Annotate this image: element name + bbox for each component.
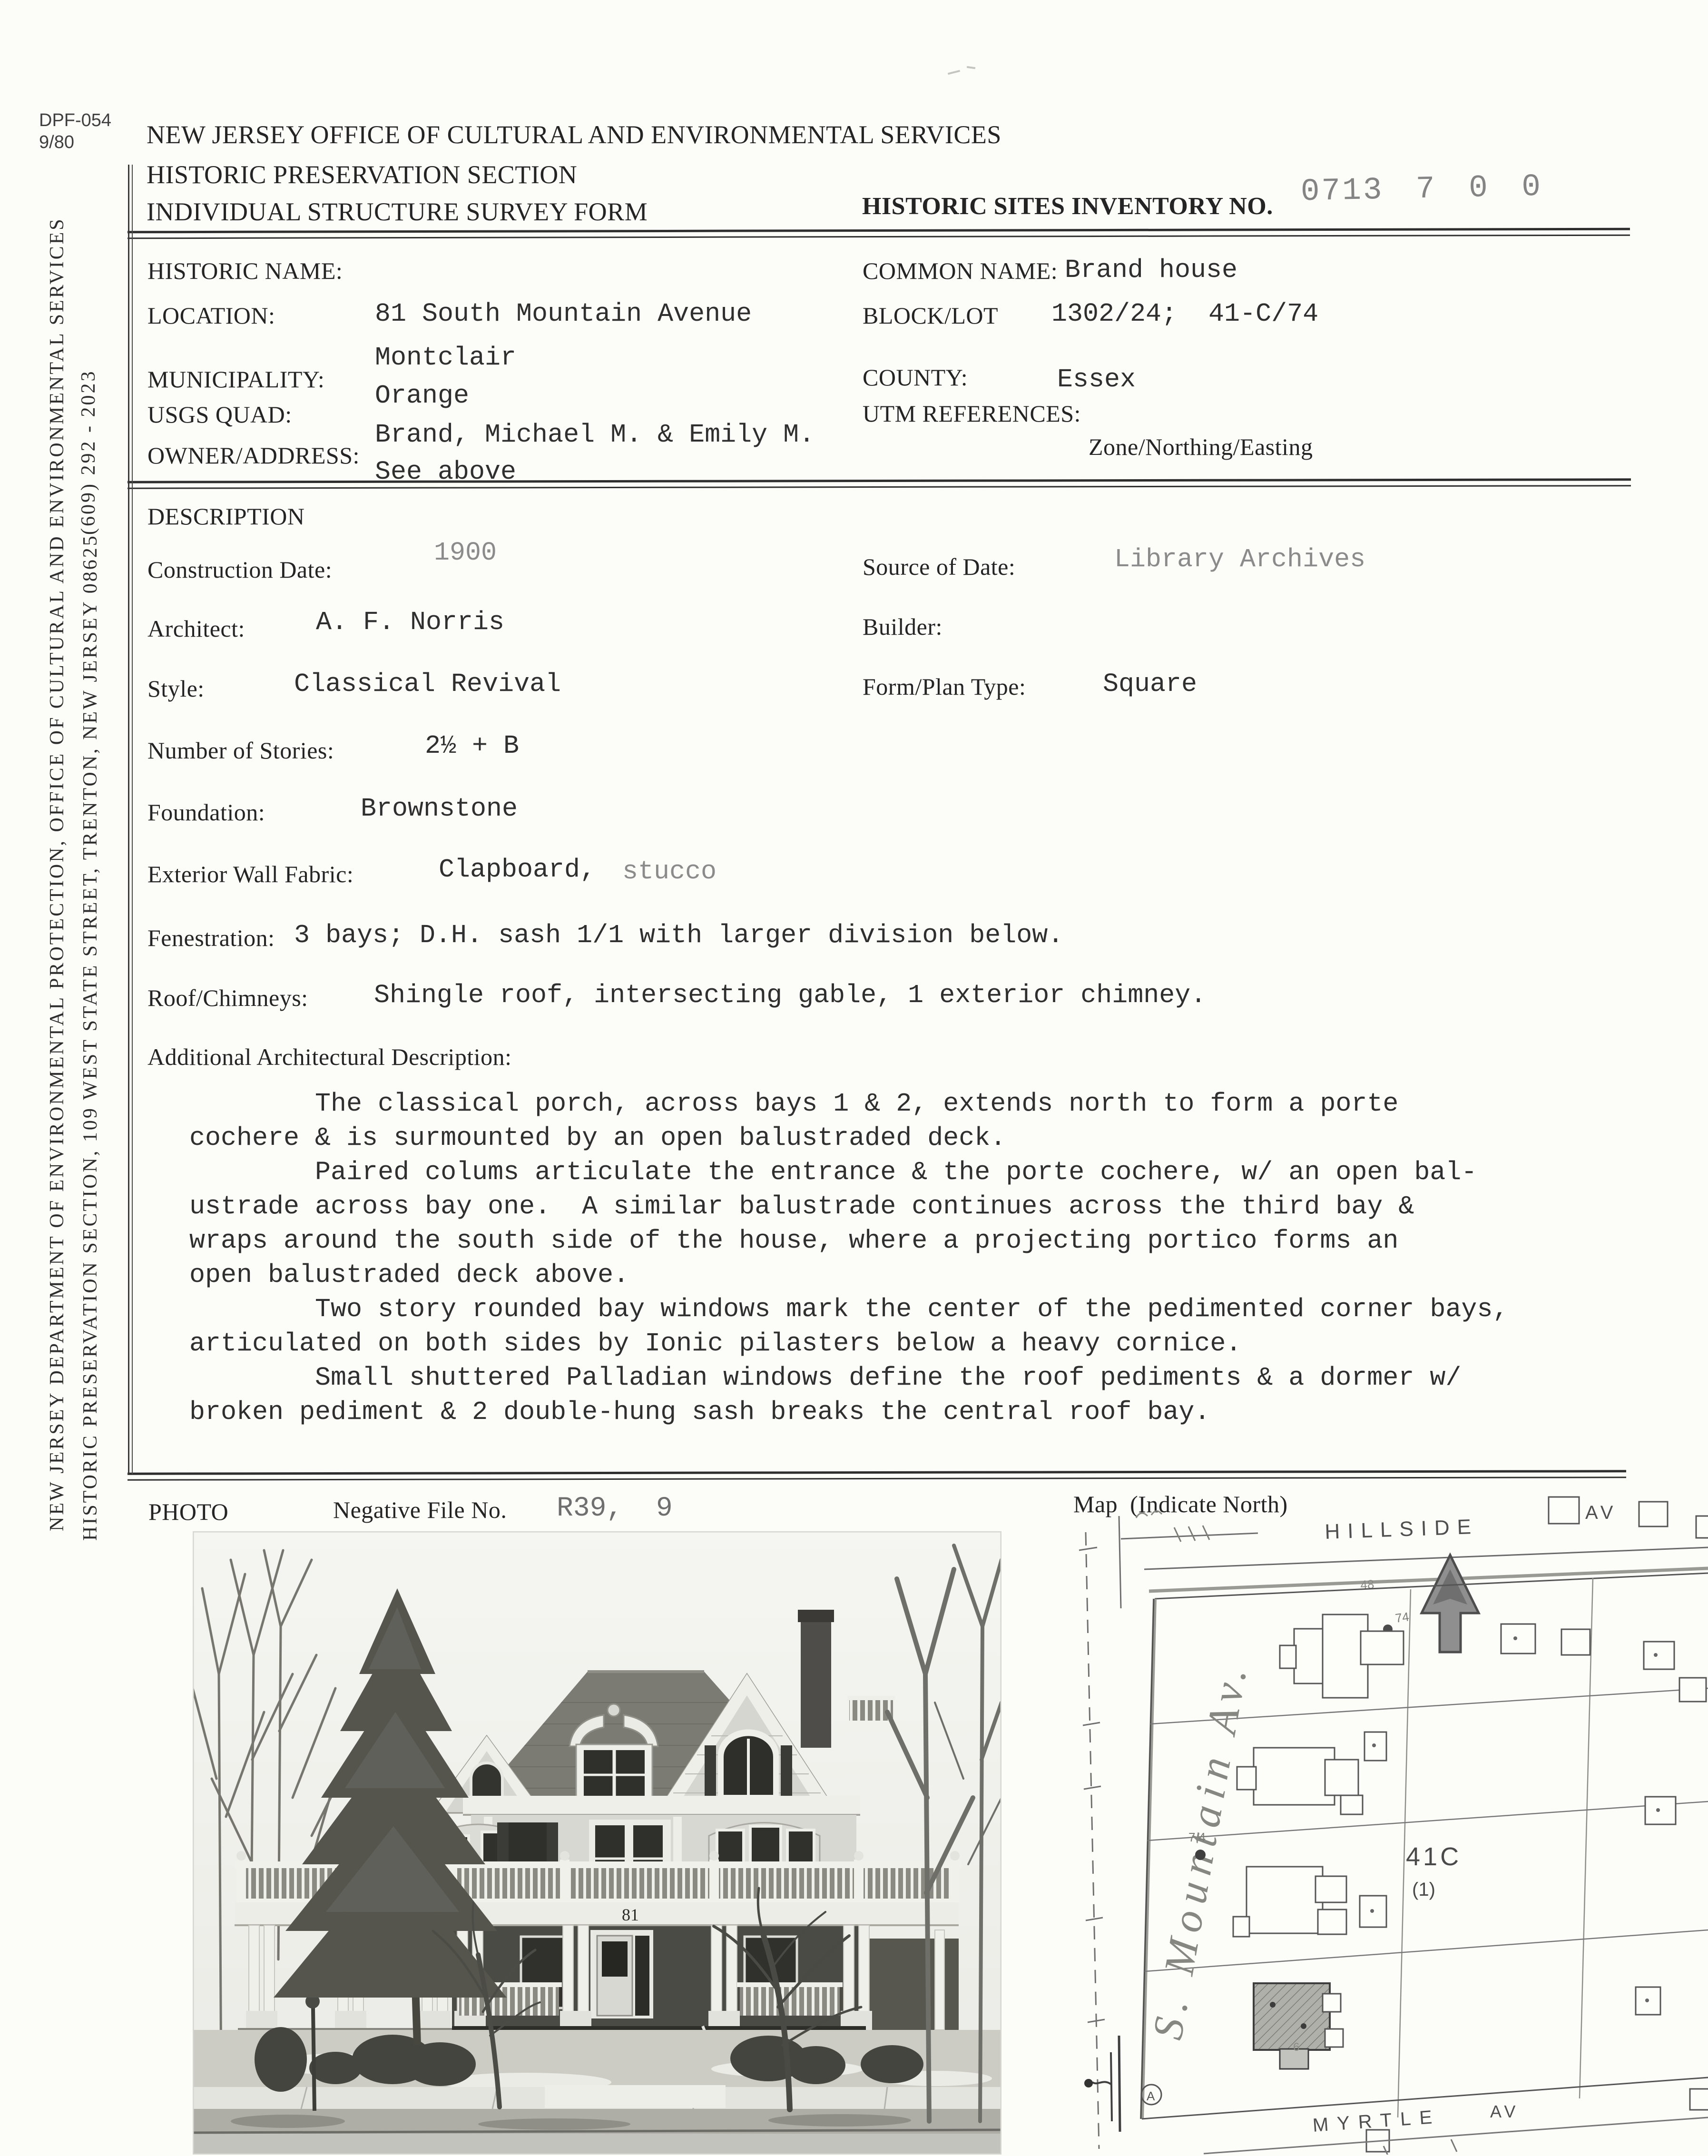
block-left-edge-shadow	[1142, 1599, 1155, 2119]
cross-street-hatches	[1174, 1526, 1209, 1542]
door-sidelight	[635, 1936, 649, 2016]
lot-label: (1)	[1412, 1879, 1435, 1900]
location-label: LOCATION:	[147, 302, 275, 329]
street-centerline-left	[1086, 1532, 1099, 2149]
wall-fabric-label: Exterior Wall Fabric:	[147, 860, 353, 888]
architect-value: A. F. Norris	[316, 607, 504, 637]
chimney	[801, 1610, 831, 1748]
source-of-date-label: Source of Date:	[863, 553, 1015, 581]
sidebar-phone: (609) 292 - 2023	[77, 370, 100, 535]
utm-references-label: UTM REFERENCES:	[863, 400, 1081, 427]
paragraph-line: The classical porch, across bays 1 & 2, …	[189, 1087, 1508, 1121]
block-label: 41C	[1406, 1842, 1462, 1871]
paragraph-line: articulated on both sides by Ionic pilas…	[189, 1327, 1508, 1361]
historic-name-label: HISTORIC NAME:	[147, 257, 343, 285]
utility-pole-symbol	[1084, 2036, 1120, 2132]
cross-street-top-edge	[1121, 1533, 1258, 1539]
stories-label: Number of Stories:	[147, 737, 334, 764]
horizontal-rule-middle	[128, 478, 1631, 489]
paragraph-line: cochere & is surmounted by an open balus…	[189, 1121, 1508, 1155]
description-section-title: DESCRIPTION	[147, 502, 305, 530]
door-glass	[602, 1941, 628, 1977]
fenestration-value: 3 bays; D.H. sash 1/1 with larger divisi…	[294, 920, 1063, 950]
street-name-hillside: HILLSIDE	[1325, 1515, 1479, 1544]
foundation-label: Foundation:	[147, 798, 265, 826]
horizontal-rule-top	[128, 228, 1630, 239]
hillside-street-line	[1144, 1547, 1708, 1569]
inventory-number-stamp: 0713 7 0 0	[1300, 169, 1543, 210]
street-name-myrtle-av: AV	[1490, 2102, 1519, 2121]
map-annotation-6: 6	[1293, 2041, 1299, 2054]
owner-value-line1: Brand, Michael M. & Emily M.	[375, 420, 815, 450]
roof-deck-balustrade	[849, 1699, 893, 1721]
construction-date-value: 1900	[434, 538, 497, 568]
architect-label: Architect:	[147, 615, 245, 642]
common-name-label: COMMON NAME:	[863, 257, 1058, 285]
negative-file-label: Negative File No.	[333, 1496, 507, 1524]
paragraph-line: Two story rounded bay windows mark the c…	[189, 1292, 1508, 1327]
sidebar-agency-address-inner: HISTORIC PRESERVATION SECTION, 109 WEST …	[79, 534, 102, 1541]
usgs-quad-value: Orange	[375, 381, 469, 411]
sidebar-agency-address-outer: NEW JERSEY DEPARTMENT OF ENVIRONMENTAL P…	[46, 217, 69, 1531]
usgs-quad-label: USGS QUAD:	[147, 401, 292, 428]
county-value: Essex	[1057, 364, 1136, 394]
negative-file-number: R39, 9	[557, 1493, 673, 1524]
footprint-marks	[1370, 1636, 1660, 2002]
wall-fabric-value: Clapboard,	[439, 855, 596, 885]
paragraph-line: Paired colums articulate the entrance & …	[189, 1155, 1508, 1190]
source-of-date-value: Library Archives	[1114, 544, 1365, 574]
foundation-value: Brownstone	[361, 794, 518, 824]
county-label: COUNTY:	[863, 364, 968, 391]
left-border-line-outer	[128, 165, 129, 1474]
dormer-finial	[608, 1704, 620, 1716]
map-annotation-7h: 7 4	[1188, 1830, 1206, 1844]
agency-title-line2: HISTORIC PRESERVATION SECTION	[147, 160, 577, 189]
wall-fabric-value-gray: stucco	[622, 856, 717, 886]
corner-marker-letter: A	[1147, 2089, 1155, 2103]
roof-chimneys-label: Roof/Chimneys:	[147, 984, 308, 1012]
horizontal-rule-photo	[128, 1470, 1626, 1480]
style-value: Classical Revival	[294, 669, 561, 699]
utm-zone-sublabel: Zone/Northing/Easting	[1089, 433, 1313, 461]
agency-title-line1: NEW JERSEY OFFICE OF CULTURAL AND ENVIRO…	[147, 120, 1001, 149]
porch-rail	[737, 1982, 843, 1987]
palladian-shutter-left	[705, 1745, 716, 1799]
builder-label: Builder:	[863, 613, 942, 640]
form-number-block: DPF-054 9/80	[39, 109, 111, 153]
front-walk	[545, 2085, 726, 2108]
photo-label: PHOTO	[148, 1498, 228, 1526]
location-map: HILLSIDE AV 48 74 S. Mountain Av.	[1056, 1488, 1708, 2155]
left-border-line-inner	[132, 165, 133, 1474]
agency-title-line3: INDIVIDUAL STRUCTURE SURVEY FORM	[147, 197, 648, 226]
roof-chimneys-value: Shingle roof, intersecting gable, 1 exte…	[374, 980, 1206, 1010]
form-revision: 9/80	[39, 131, 111, 153]
owner-value-line2: See above	[375, 457, 516, 487]
construction-date-label: Construction Date:	[147, 556, 332, 583]
owner-address-label: OWNER/ADDRESS:	[147, 442, 360, 469]
cross-street-top	[1119, 1516, 1121, 1608]
street-name-myrtle: MYRTLE	[1312, 2106, 1442, 2136]
paragraph-line: wraps around the south side of the house…	[189, 1224, 1508, 1258]
paragraph-line: ustrade across bay one. A similar balust…	[189, 1190, 1508, 1224]
additional-description-label: Additional Architectural Description:	[147, 1043, 512, 1071]
roof-deck-rail	[847, 1696, 895, 1700]
common-name-value: Brand house	[1065, 255, 1237, 285]
paragraph-line: Small shuttered Palladian windows define…	[189, 1361, 1508, 1395]
street-name-hillside-av: AV	[1585, 1502, 1617, 1523]
interior-lot-line-vertical-2	[1580, 1578, 1593, 2098]
hillside-street-edge	[1149, 1568, 1708, 1591]
form-plan-type-value: Square	[1103, 669, 1197, 699]
form-plan-type-label: Form/Plan Type:	[863, 673, 1026, 700]
palladian-shutter-right	[781, 1745, 792, 1799]
paragraph-line: broken pediment & 2 double-hung sash bre…	[189, 1395, 1508, 1429]
porch-balustrade-right	[740, 1986, 840, 2016]
house-number: 81	[622, 1905, 639, 1924]
road	[193, 2134, 1001, 2155]
street-ticks	[1079, 1547, 1105, 2022]
building-footprints	[1233, 1615, 1404, 1937]
block-lot-label: BLOCK/LOT	[863, 302, 998, 329]
scan-artifact	[948, 70, 960, 75]
paragraph-line: open balustraded deck above.	[189, 1258, 1508, 1292]
form-number: DPF-054	[39, 109, 111, 131]
house-photograph: 81	[193, 1531, 1001, 2155]
map-annotation-74: 74	[1394, 1609, 1410, 1625]
municipality-label: MUNICIPALITY:	[147, 365, 324, 393]
survey-form-page: DPF-054 9/80 NEW JERSEY OFFICE OF CULTUR…	[0, 0, 1708, 2156]
chimney-cap	[798, 1610, 834, 1622]
subject-building-footprint	[1254, 1983, 1343, 2069]
neighbor-footprints	[1360, 1497, 1708, 2152]
fenestration-label: Fenestration:	[147, 924, 275, 952]
municipality-value: Montclair	[375, 343, 516, 373]
north-arrow-icon	[1422, 1555, 1479, 1652]
block-lot-value: 1302/24; 41-C/74	[1051, 299, 1318, 329]
stories-value: 2½ + B	[425, 731, 519, 761]
handwritten-mark	[1136, 1511, 1162, 1518]
map-dot-marker-subject	[1195, 1850, 1206, 1860]
main-cornice	[463, 1796, 860, 1815]
location-value: 81 South Mountain Avenue	[375, 299, 752, 329]
style-label: Style:	[147, 675, 205, 702]
myrtle-ticks	[1384, 2139, 1457, 2155]
additional-description-paragraph: The classical porch, across bays 1 & 2, …	[189, 1087, 1508, 1429]
inventory-number-label: HISTORIC SITES INVENTORY NO.	[862, 192, 1273, 220]
block-left-edge	[1141, 1599, 1154, 2119]
scan-artifact	[967, 66, 975, 69]
